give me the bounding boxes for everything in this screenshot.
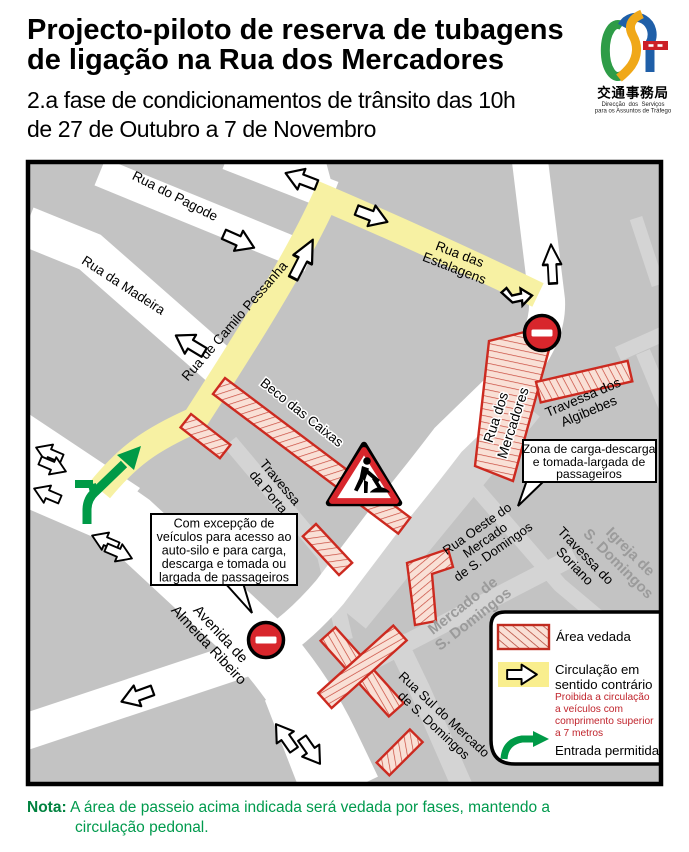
svg-text:Proibida a circulação: Proibida a circulação bbox=[555, 692, 650, 703]
svg-text:Com excepção de: Com excepção de bbox=[174, 517, 275, 531]
svg-text:auto-silo e para carga,: auto-silo e para carga, bbox=[162, 544, 286, 558]
svg-text:a veículos com: a veículos com bbox=[555, 704, 623, 715]
svg-text:passageiros: passageiros bbox=[556, 467, 622, 481]
svg-text:veículos para acesso ao: veículos para acesso ao bbox=[157, 530, 292, 544]
svg-text:sentido contrário: sentido contrário bbox=[555, 677, 653, 692]
svg-text:Circulação em: Circulação em bbox=[555, 662, 639, 677]
svg-text:Zona de carga-descarga: Zona de carga-descarga bbox=[523, 442, 656, 456]
svg-text:Área vedada: Área vedada bbox=[556, 629, 631, 644]
svg-text:Entrada permitida: Entrada permitida bbox=[555, 743, 660, 758]
svg-text:a 7 metros: a 7 metros bbox=[555, 728, 603, 739]
svg-text:comprimento superior: comprimento superior bbox=[555, 716, 654, 727]
svg-text:largada de passageiros: largada de passageiros bbox=[159, 571, 289, 585]
svg-text:descarga e tomada ou: descarga e tomada ou bbox=[162, 557, 286, 571]
